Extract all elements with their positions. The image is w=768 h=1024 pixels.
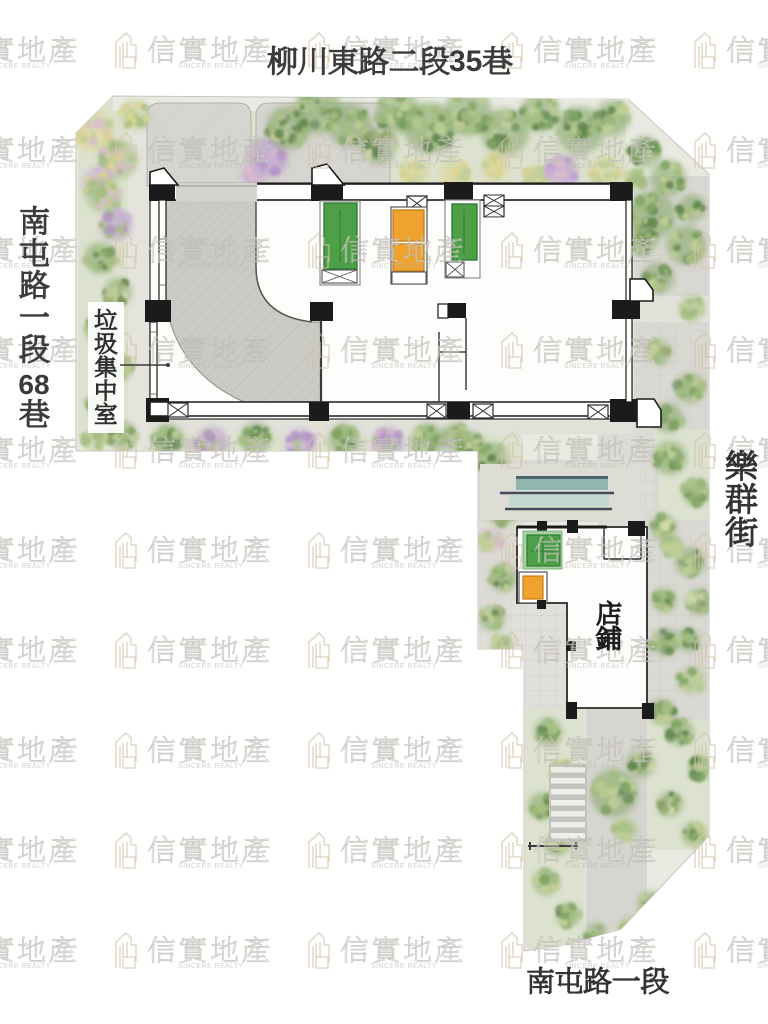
svg-text:68: 68 xyxy=(18,369,49,400)
svg-text:35: 35 xyxy=(449,45,482,78)
